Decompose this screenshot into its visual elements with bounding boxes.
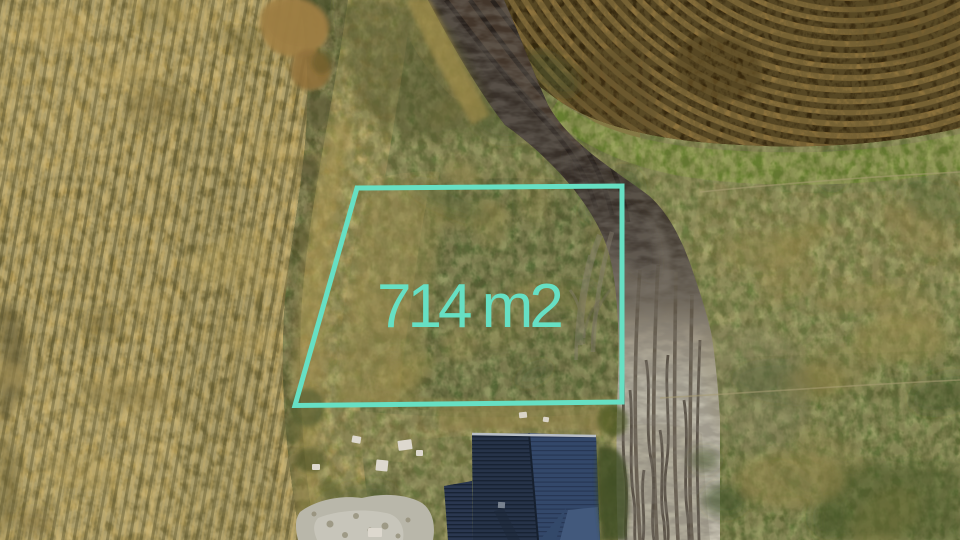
svg-text:714 m2: 714 m2	[377, 272, 561, 341]
